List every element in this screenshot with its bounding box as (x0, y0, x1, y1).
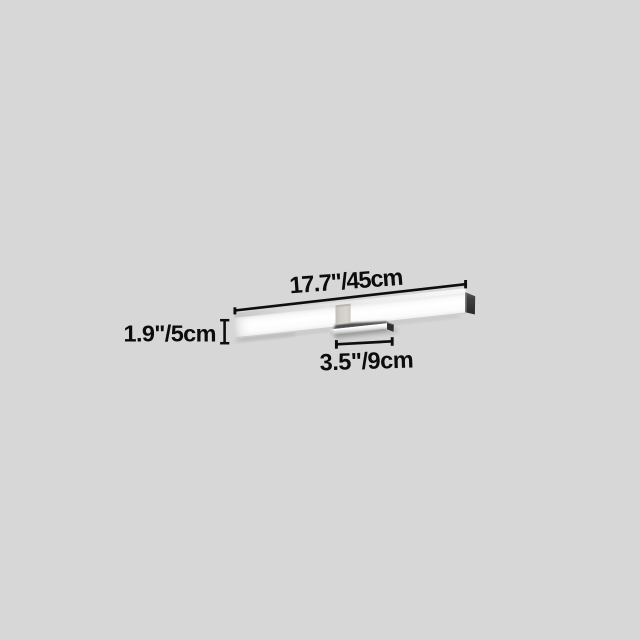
svg-text:3.5"/9cm: 3.5"/9cm (319, 346, 414, 375)
svg-text:1.9"/5cm: 1.9"/5cm (124, 321, 217, 347)
